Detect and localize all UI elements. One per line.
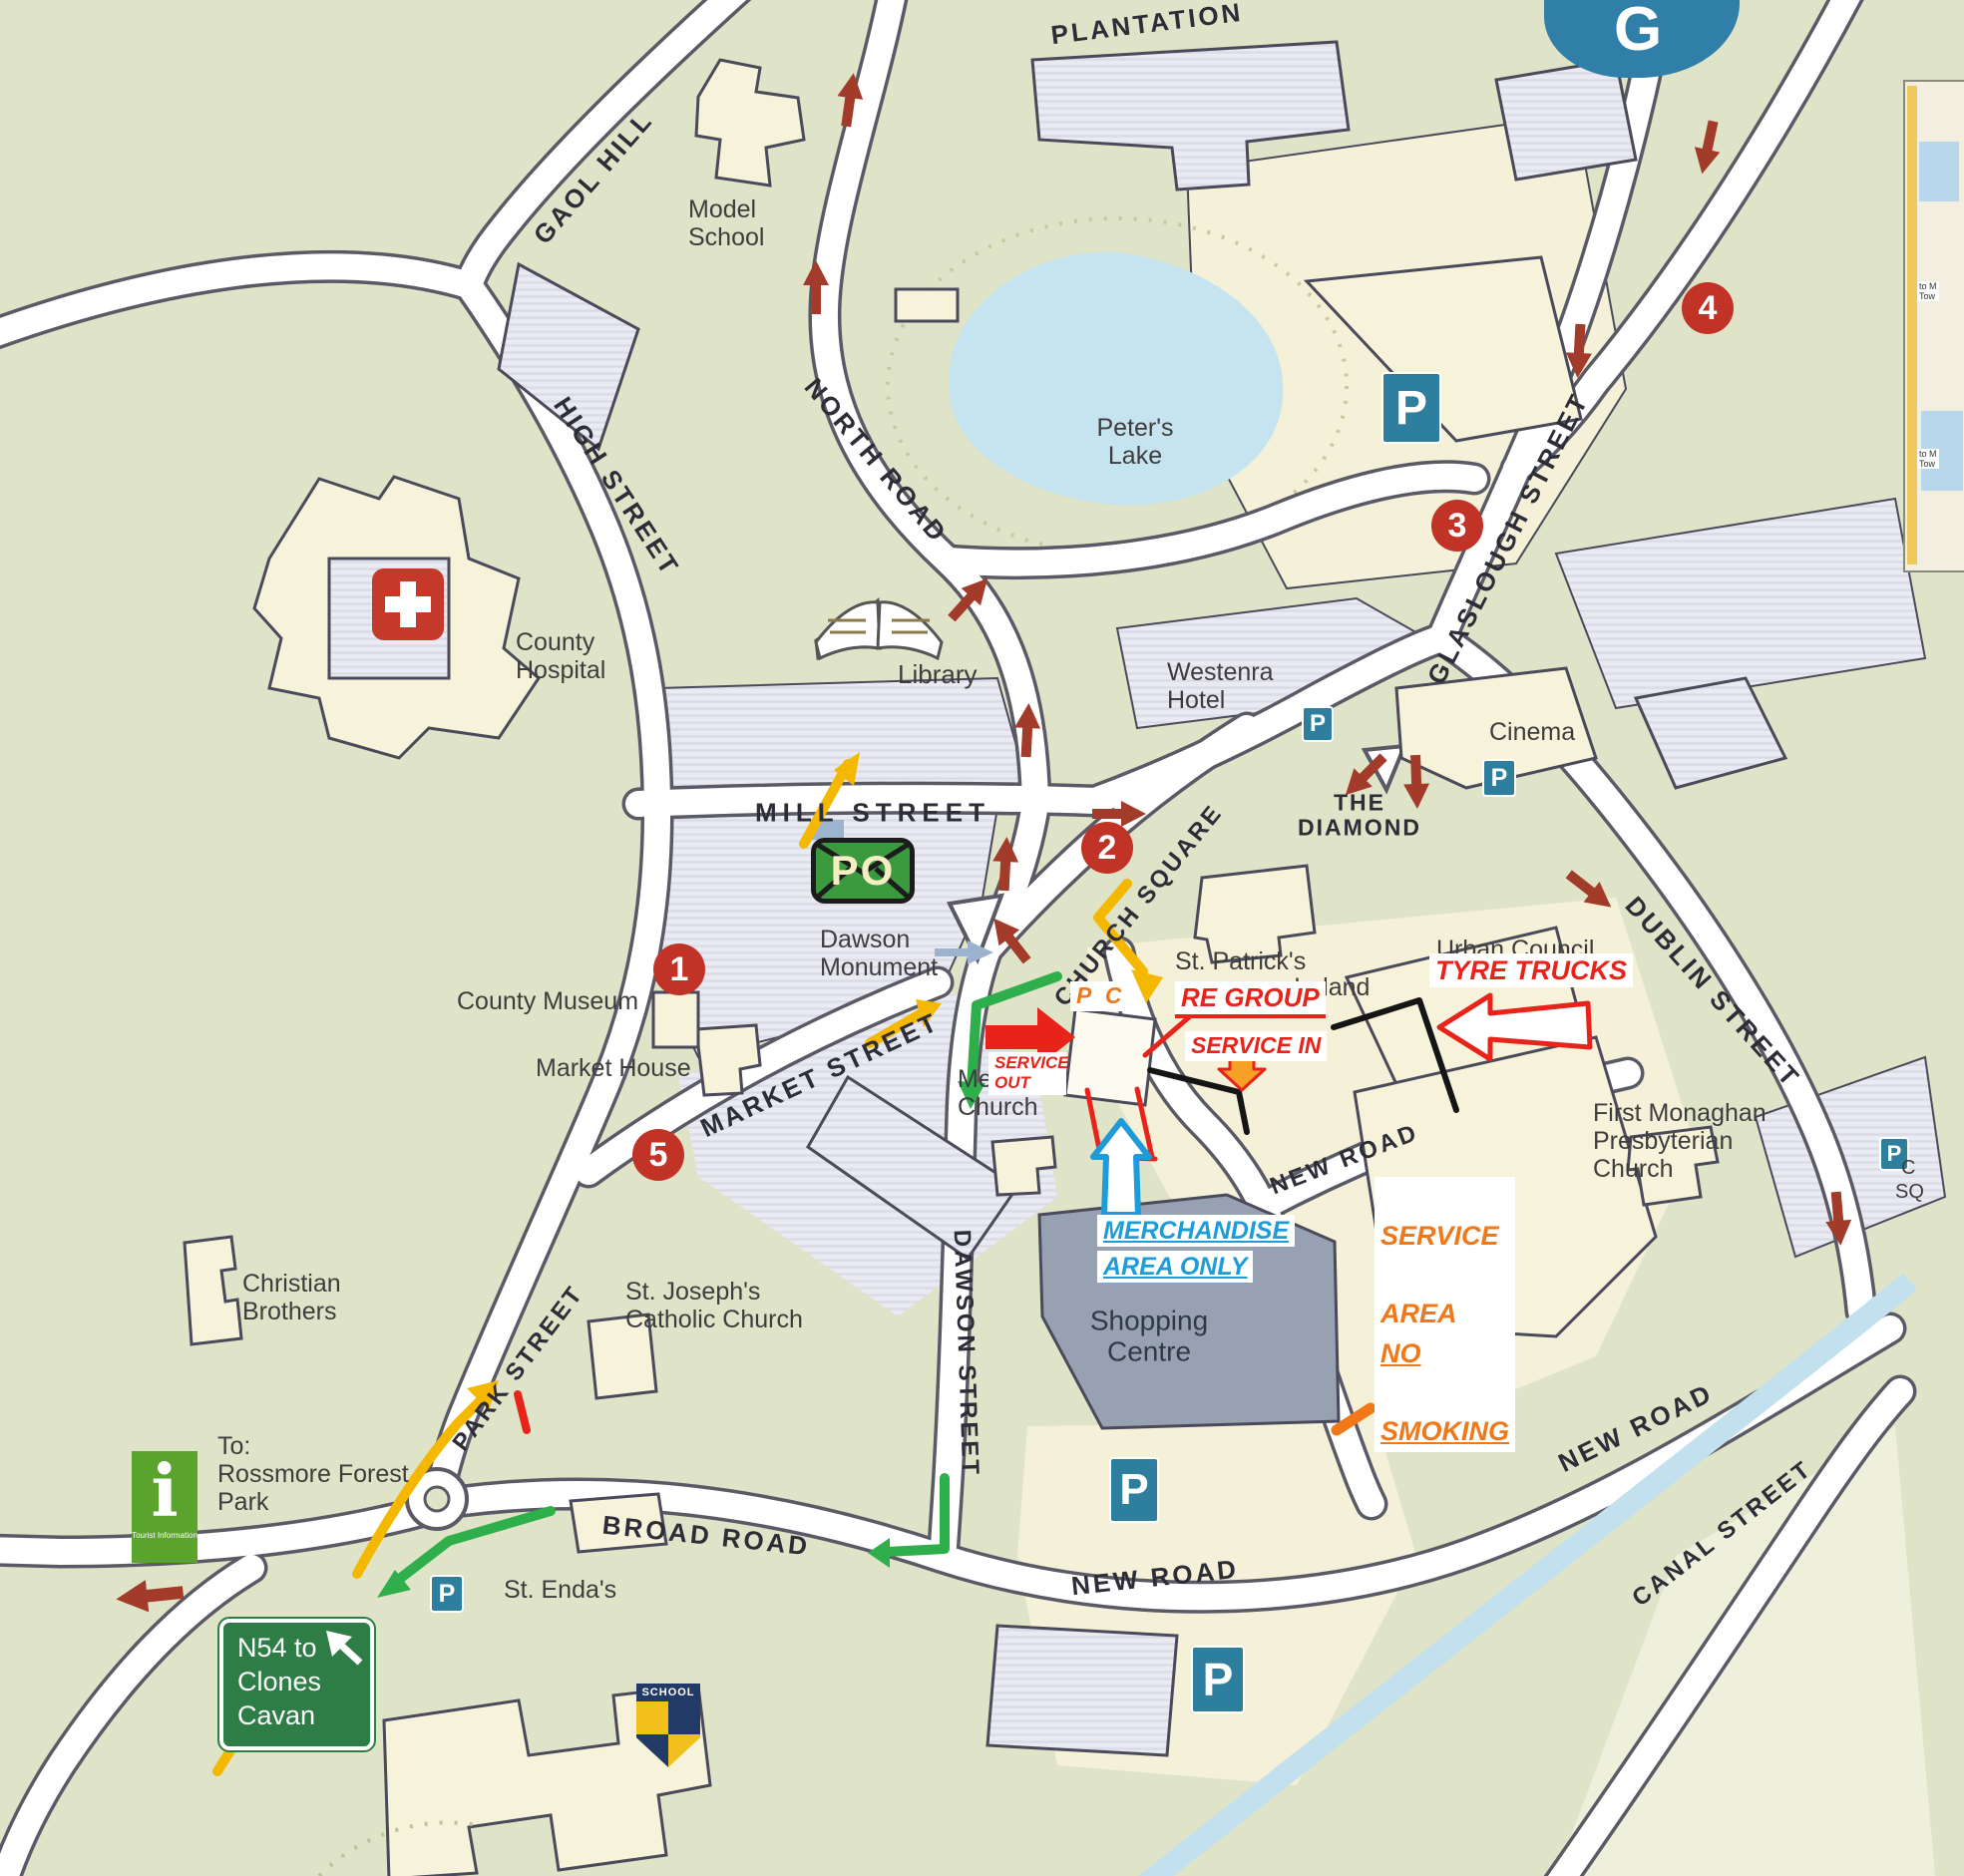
annotation-tyre-trucks: TYRE TRUCKS [1429, 953, 1633, 987]
annotation-service-in: SERVICE IN [1185, 1031, 1327, 1061]
label-st-endas: St. Enda's [504, 1576, 616, 1604]
edge-fragment: SQ [1895, 1181, 1924, 1204]
label-st-josephs: St. Joseph's Catholic Church [625, 1278, 803, 1333]
annotation-merchandise-1: MERCHANDISE [1097, 1215, 1295, 1247]
badge-5: 5 [632, 1129, 684, 1181]
one-way-arrow-icon [1690, 119, 1727, 177]
street-label-the-diamond: THE DIAMOND [1298, 791, 1421, 842]
parking-icon: P [1381, 372, 1441, 444]
label-library: Library [898, 660, 977, 689]
inset-map-panel: to M Tow to M Tow [1903, 80, 1964, 572]
inset-note: to M Tow [1917, 281, 1939, 301]
label-county-museum: County Museum [457, 987, 638, 1015]
tourist-info-icon: i Tourist Information [132, 1451, 197, 1563]
parking-icon: P [1302, 706, 1334, 742]
inset-road [1907, 86, 1917, 564]
service-area-line3: SMOKING [1380, 1416, 1509, 1446]
g-letter: G [1614, 0, 1662, 65]
hospital-cross-icon [372, 568, 444, 640]
school-banner: SCHOOL [636, 1684, 700, 1701]
school-shield-body [636, 1701, 700, 1767]
po-label: PO [831, 847, 896, 895]
post-office-icon: PO [811, 838, 915, 904]
service-area-line1: SERVICE [1380, 1221, 1499, 1251]
label-shopping-centre: Shopping Centre [1090, 1306, 1208, 1368]
inset-note: to M Tow [1917, 449, 1939, 469]
parking-icon: P [1482, 759, 1516, 797]
n54-road-sign: N54 to Clones Cavan [219, 1619, 374, 1750]
annotation-merchandise-2: AREA ONLY [1097, 1251, 1253, 1283]
service-area-line2b: NO [1380, 1338, 1421, 1368]
label-first-presbyterian: First Monaghan Presbyterian Church [1593, 1099, 1767, 1183]
label-model-school: Model School [688, 195, 764, 251]
label-westenra-hotel: Westenra Hotel [1167, 658, 1274, 714]
street-label-mill-street: MILL STREET [755, 798, 990, 829]
badge-2: 2 [1081, 822, 1133, 874]
service-area-line2a: AREA [1380, 1299, 1457, 1328]
info-caption: Tourist Information [132, 1531, 197, 1540]
n54-sign-text: N54 to Clones Cavan [237, 1631, 321, 1732]
label-rossmore: To: Rossmore Forest Park [217, 1432, 409, 1516]
label-market-house: Market House [536, 1054, 691, 1082]
parking-icon: P [430, 1575, 464, 1613]
school-shield-icon: SCHOOL [636, 1684, 700, 1767]
annotation-service-area: SERVICE AREA NO SMOKING [1375, 1177, 1515, 1452]
label-christian-brothers: Christian Brothers [242, 1270, 341, 1325]
badge-1: 1 [653, 943, 705, 995]
label-cinema: Cinema [1489, 718, 1575, 746]
label-st-patricks: St. Patrick's [1175, 947, 1306, 975]
label-county-hospital: County Hospital [516, 628, 605, 684]
library-book-icon [816, 600, 942, 658]
label-dawson-monument: Dawson Monument [820, 926, 938, 981]
annotation-re-group: RE GROUP [1175, 981, 1326, 1018]
badge-4: 4 [1682, 282, 1734, 334]
inset-water [1919, 142, 1959, 201]
annotation-pc: P C [1070, 981, 1132, 1011]
n54-arrow-icon [322, 1629, 366, 1669]
town-map: GAOL HILL HIGH STREET NORTH ROAD PLANTAT… [0, 0, 1964, 1876]
parking-icon: P [1109, 1457, 1159, 1523]
badge-3: 3 [1431, 500, 1483, 552]
label-peters-lake: Peter's Lake [1096, 414, 1173, 470]
annotation-service-out: SERVICE OUT [988, 1052, 1066, 1095]
edge-fragment: C [1901, 1157, 1915, 1180]
parking-icon: P [1191, 1646, 1245, 1713]
info-letter: i [132, 1451, 197, 1531]
